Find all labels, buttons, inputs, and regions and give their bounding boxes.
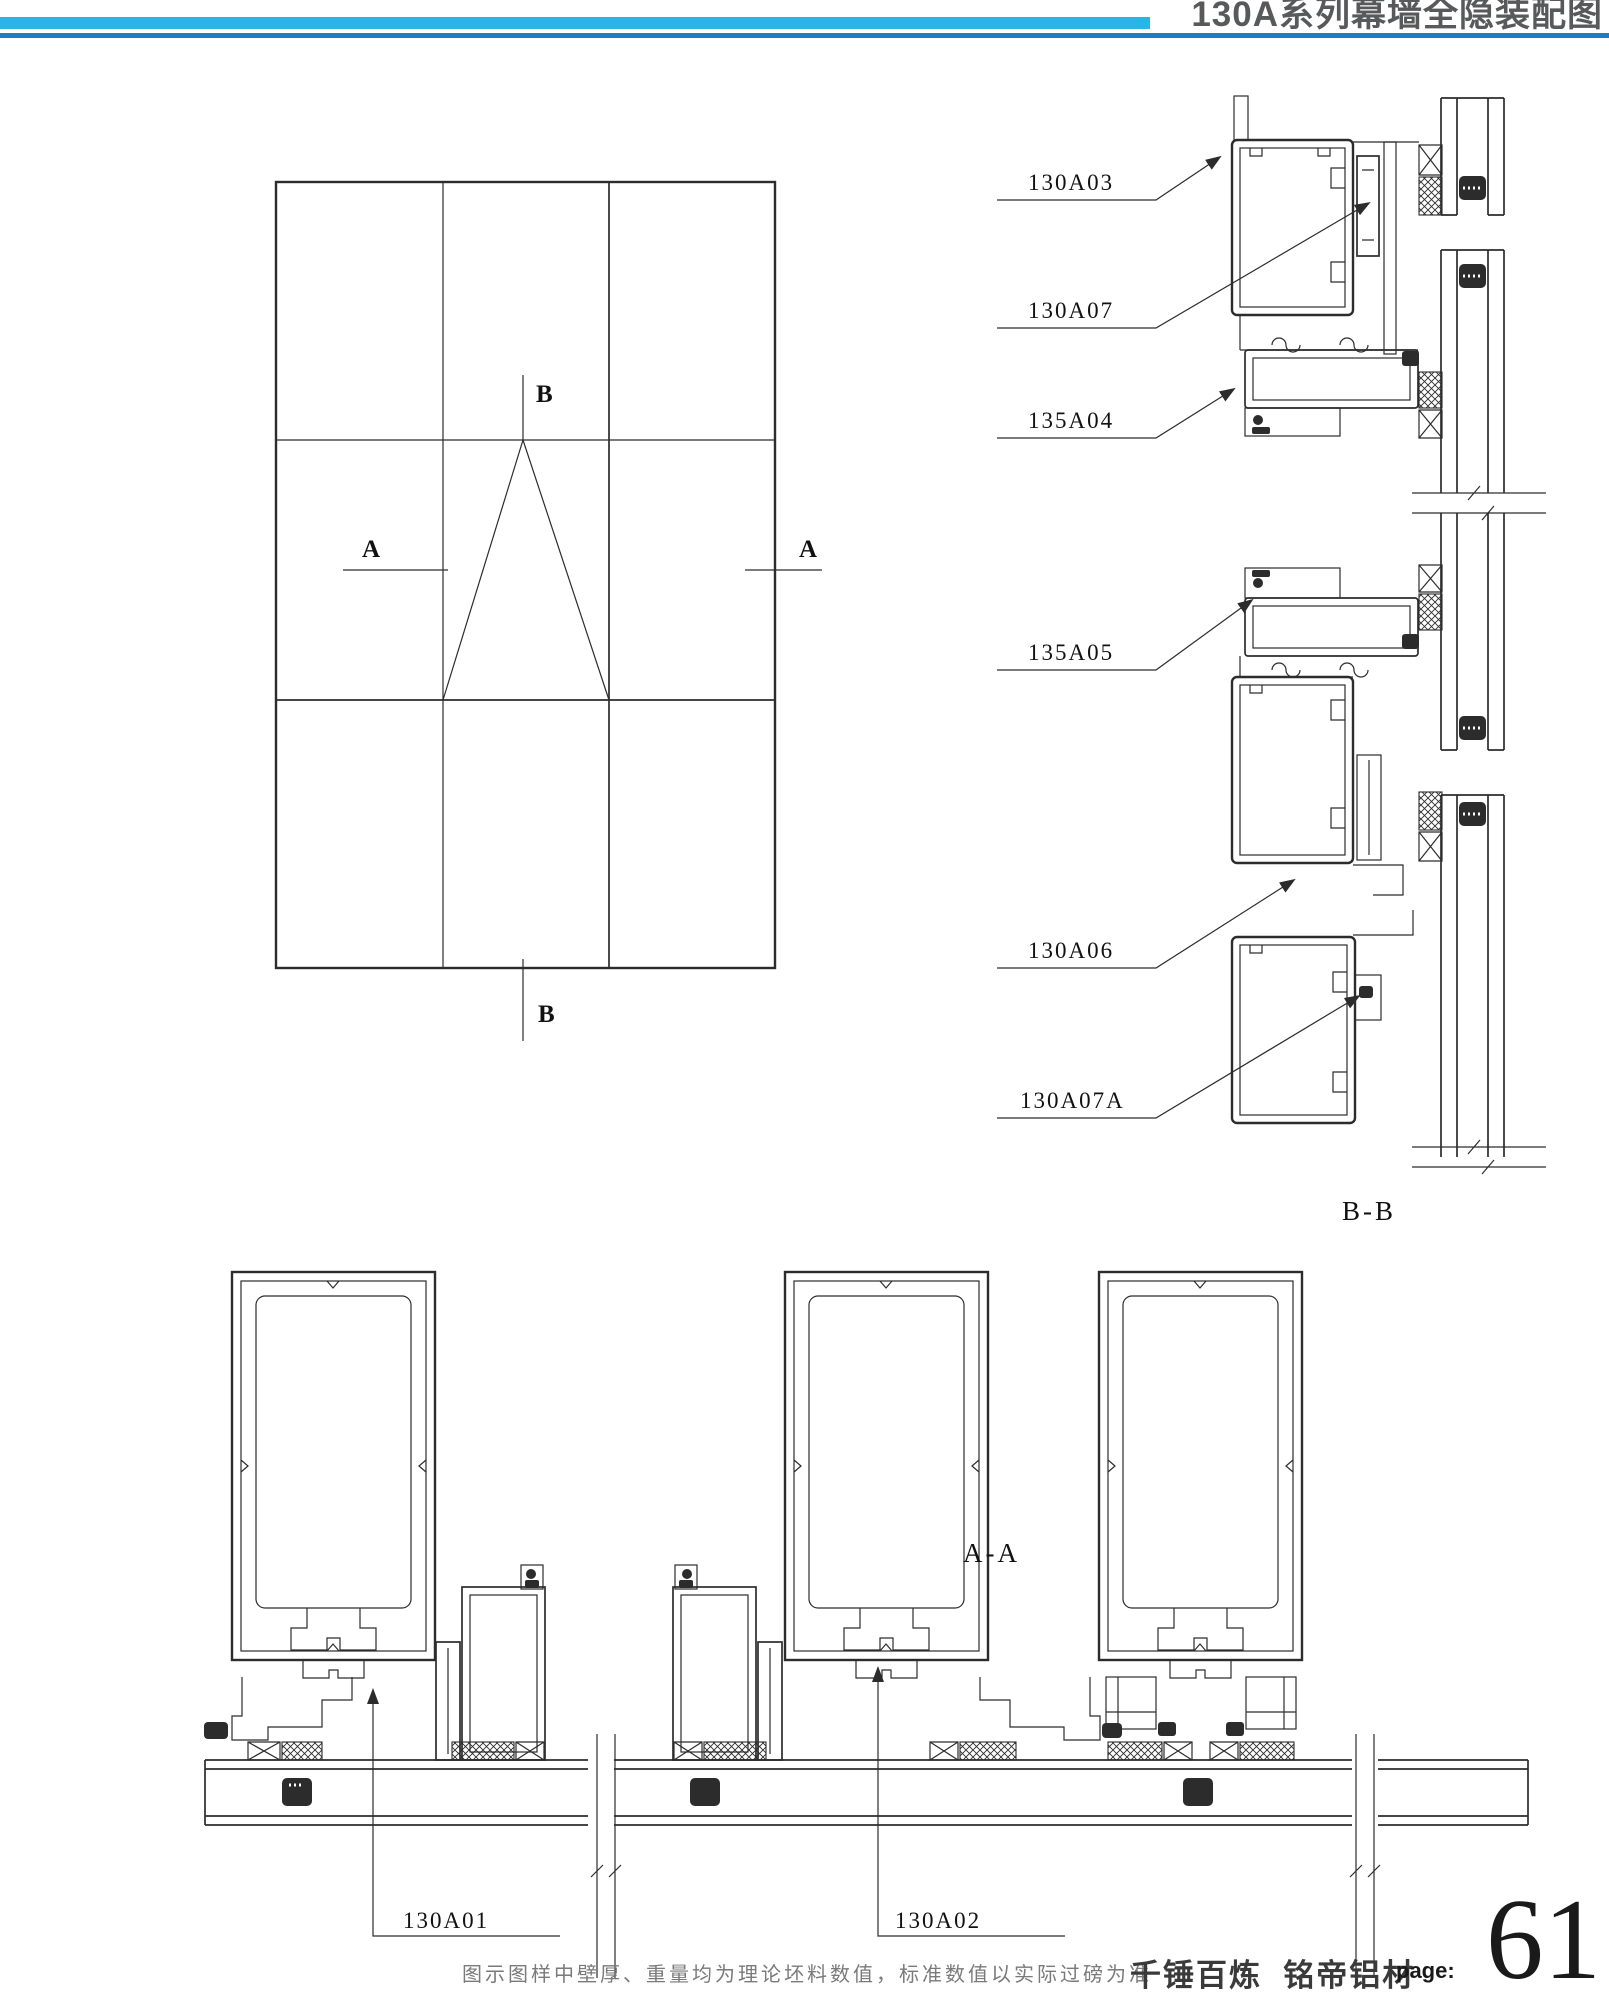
glass-unit-column (1412, 98, 1546, 1174)
glazing-gasket-top (1419, 145, 1442, 215)
anchor-stub (1234, 96, 1248, 140)
profile-130A03 (1232, 140, 1353, 315)
part-label-130A02: 130A02 (878, 1668, 1065, 1936)
vent-gasket-top (1402, 351, 1442, 438)
bb-section-drawing: 130A03 130A07 135A04 135A05 130A06 130A0… (997, 96, 1546, 1226)
section-letter-a-left: A (362, 536, 380, 563)
interlock-hooks-mid (1240, 656, 1368, 677)
profile-130A07A (1353, 865, 1413, 1020)
vent-jamb-left (436, 1565, 545, 1760)
mullion3-gaskets (1108, 1742, 1294, 1760)
mullion1-gaskets (248, 1742, 322, 1760)
mullion-cross-section-3 (1099, 1272, 1302, 1678)
part-label-135A05: 135A05 (997, 600, 1252, 670)
vent-gasket-bottom (1402, 565, 1442, 649)
part-label-text: 135A05 (1028, 640, 1114, 665)
footer-page-label: page: (1396, 1958, 1455, 1984)
mullion2-foot (980, 1677, 1122, 1740)
assembly-drawing: B B A A (0, 0, 1609, 2000)
leader-line (373, 1690, 560, 1936)
section-letter-b-bottom: B (538, 1001, 555, 1028)
footer-brand: 千锤百炼 铭帝铝材 (1130, 1950, 1415, 1995)
interlock-hooks-top (1240, 315, 1418, 352)
part-label-130A07A: 130A07A (997, 996, 1359, 1118)
mullion2-gaskets (930, 1742, 1016, 1760)
section-letter-a-right: A (799, 536, 817, 563)
footer-disclaimer: 图示图样中壁厚、重量均为理论坯料数值，标准数值以实际过磅为准 (462, 1958, 1152, 1987)
part-label-130A06: 130A06 (997, 880, 1294, 968)
part-label-text: 130A02 (895, 1908, 981, 1933)
part-label-text: 135A04 (1028, 408, 1114, 433)
profile-135A04 (1245, 350, 1418, 436)
part-label-135A04: 135A04 (997, 389, 1234, 438)
catalog-page: 130A系列幕墙全隐装配图 (0, 0, 1609, 2000)
part-label-text: 130A01 (403, 1908, 489, 1933)
aa-section-drawing: 130A01 130A02 A-A (204, 1272, 1528, 1978)
part-label-130A03: 130A03 (997, 157, 1220, 200)
mullion-cross-section-2 (785, 1272, 988, 1678)
glass-band (205, 1760, 1528, 1825)
aa-section-title: A-A (963, 1538, 1020, 1568)
elevation-outline (276, 182, 775, 968)
footer-page-number: 61 (1486, 1884, 1601, 1996)
part-label-text: 130A06 (1028, 938, 1114, 963)
vent-jamb-left-gaskets (452, 1742, 544, 1760)
part-label-text: 130A07A (1020, 1088, 1125, 1113)
leader-line (878, 1668, 1065, 1936)
vent-opening-triangle (443, 440, 609, 700)
profile-130A07 (1357, 142, 1396, 354)
mullion1-foot (204, 1677, 352, 1740)
vent-jamb-right (673, 1565, 782, 1760)
profile-135A05 (1245, 568, 1418, 656)
glass-break-symbol-lower (1412, 1140, 1546, 1174)
part-label-text: 130A03 (1028, 170, 1114, 195)
vent-jamb-right-gaskets (674, 1742, 766, 1760)
glazing-gasket-lower (1419, 792, 1442, 861)
profile-130A06-upper-box (1232, 677, 1381, 863)
mullion-cross-section-1 (232, 1272, 435, 1678)
elevation-grid-thick (276, 182, 775, 968)
mullion3-feet (1106, 1677, 1296, 1736)
part-label-text: 130A07 (1028, 298, 1114, 323)
profile-130A06-lower-box (1232, 937, 1355, 1123)
elevation-grid-thin (276, 182, 775, 968)
part-label-130A01: 130A01 (373, 1690, 560, 1936)
section-letter-b-top: B (536, 381, 553, 408)
glass-band-break-symbols (591, 1734, 1380, 1978)
part-label-130A07: 130A07 (997, 203, 1369, 328)
elevation-diagram: B B A A (276, 182, 822, 1041)
bb-section-title: B-B (1342, 1196, 1396, 1226)
glass-break-symbol-upper (1412, 486, 1546, 520)
